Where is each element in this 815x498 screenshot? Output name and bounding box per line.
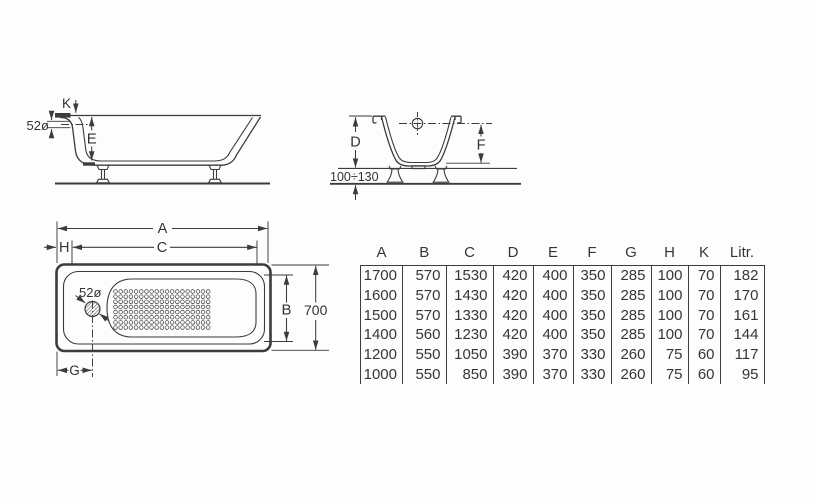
dim-label-b: B bbox=[281, 302, 291, 319]
dim-label-leg-range: 100÷130 bbox=[330, 170, 379, 184]
table-cell: 182 bbox=[720, 266, 764, 286]
table-cell: 350 bbox=[573, 286, 611, 306]
table-row: 1400560123042040035028510070144 bbox=[361, 325, 765, 345]
table-cell: 1400 bbox=[361, 325, 403, 345]
dim-f: F bbox=[446, 125, 490, 163]
table-header-cell: F bbox=[573, 236, 611, 266]
table-cell: 100 bbox=[651, 305, 688, 325]
table-header-cell: Litr. bbox=[720, 236, 764, 266]
dim-label-g: G bbox=[69, 363, 80, 378]
table-row: 1500570133042040035028510070161 bbox=[361, 305, 765, 325]
table-cell: 400 bbox=[533, 286, 573, 306]
table-cell: 1230 bbox=[446, 325, 493, 345]
dim-g: G bbox=[57, 352, 92, 379]
table-header-cell: C bbox=[446, 236, 493, 266]
dim-label-h: H bbox=[59, 240, 69, 256]
table-cell: 100 bbox=[651, 325, 688, 345]
top-view: 52ø A H C B bbox=[44, 221, 329, 378]
dim-e: E bbox=[87, 117, 97, 161]
table-cell: 285 bbox=[611, 266, 651, 286]
table-cell: 60 bbox=[688, 364, 720, 384]
table-cell: 285 bbox=[611, 305, 651, 325]
table-cell: 370 bbox=[533, 345, 573, 365]
table-header-cell: B bbox=[403, 236, 447, 266]
table-cell: 1530 bbox=[446, 266, 493, 286]
table-header-cell: E bbox=[533, 236, 573, 266]
table-header-cell: A bbox=[361, 236, 403, 266]
table-cell: 1050 bbox=[446, 345, 493, 365]
table-cell: 370 bbox=[533, 364, 573, 384]
table-cell: 390 bbox=[493, 364, 533, 384]
table-cell: 70 bbox=[688, 286, 720, 306]
dim-label-k: K bbox=[62, 96, 71, 111]
table-cell: 1000 bbox=[361, 364, 403, 384]
table-cell: 75 bbox=[651, 345, 688, 365]
dim-label-e: E bbox=[87, 131, 97, 148]
table-cell: 285 bbox=[611, 325, 651, 345]
table-cell: 70 bbox=[688, 325, 720, 345]
table-cell: 1600 bbox=[361, 286, 403, 306]
table-cell: 330 bbox=[573, 364, 611, 384]
table-cell: 260 bbox=[611, 345, 651, 365]
table-cell: 1700 bbox=[361, 266, 403, 286]
table-cell: 550 bbox=[403, 364, 447, 384]
side-view: K E 52ø bbox=[27, 96, 271, 184]
table-cell: 170 bbox=[720, 286, 764, 306]
dim-k: K bbox=[62, 96, 76, 113]
table-header-cell: D bbox=[493, 236, 533, 266]
table-header-row: ABCDEFGHKLitr. bbox=[361, 236, 765, 266]
table-cell: 570 bbox=[403, 286, 447, 306]
table-cell: 144 bbox=[720, 325, 764, 345]
antislip-mat bbox=[114, 290, 210, 330]
table-cell: 117 bbox=[720, 345, 764, 365]
dim-label-d: D bbox=[350, 135, 360, 151]
table-cell: 100 bbox=[651, 266, 688, 286]
section-view: D 100÷130 F bbox=[330, 112, 521, 200]
table-cell: 1330 bbox=[446, 305, 493, 325]
table-cell: 95 bbox=[720, 364, 764, 384]
dim-label-700: 700 bbox=[304, 302, 328, 318]
dim-label-c: C bbox=[157, 240, 167, 256]
table-cell: 260 bbox=[611, 364, 651, 384]
table-cell: 850 bbox=[446, 364, 493, 384]
dim-d: D bbox=[349, 116, 372, 168]
table-cell: 420 bbox=[493, 286, 533, 306]
table-cell: 390 bbox=[493, 345, 533, 365]
table-header-cell: K bbox=[688, 236, 720, 266]
table-cell: 70 bbox=[688, 305, 720, 325]
table-cell: 550 bbox=[403, 345, 447, 365]
table-cell: 570 bbox=[403, 305, 447, 325]
table-cell: 350 bbox=[573, 305, 611, 325]
table-row: 120055010503903703302607560117 bbox=[361, 345, 765, 365]
table-cell: 1200 bbox=[361, 345, 403, 365]
table-row: 1000550850390370330260756095 bbox=[361, 364, 765, 384]
table-cell: 75 bbox=[651, 364, 688, 384]
table-cell: 100 bbox=[651, 286, 688, 306]
drain-recess bbox=[412, 166, 425, 169]
dim-label-a: A bbox=[158, 221, 168, 237]
table-header-cell: G bbox=[611, 236, 651, 266]
table-row: 1700570153042040035028510070182 bbox=[361, 266, 765, 286]
table-header-cell: H bbox=[651, 236, 688, 266]
table-cell: 420 bbox=[493, 305, 533, 325]
table-cell: 350 bbox=[573, 325, 611, 345]
bathtub-dimension-drawing: K E 52ø bbox=[0, 0, 815, 498]
table-cell: 70 bbox=[688, 266, 720, 286]
waste-fitting bbox=[83, 162, 95, 165]
table-cell: 560 bbox=[403, 325, 447, 345]
table-cell: 420 bbox=[493, 325, 533, 345]
table-row: 1600570143042040035028510070170 bbox=[361, 286, 765, 306]
table-cell: 400 bbox=[533, 325, 573, 345]
side-legs bbox=[97, 165, 222, 183]
dim-overall-width: 700 bbox=[272, 265, 330, 350]
table-cell: 400 bbox=[533, 305, 573, 325]
table-cell: 285 bbox=[611, 286, 651, 306]
dimensions-table: ABCDEFGHKLitr. 1700570153042040035028510… bbox=[360, 236, 765, 384]
dim-label-overflow: 52ø bbox=[27, 118, 49, 133]
table-cell: 330 bbox=[573, 345, 611, 365]
table-cell: 420 bbox=[493, 266, 533, 286]
table-cell: 1430 bbox=[446, 286, 493, 306]
table-cell: 1500 bbox=[361, 305, 403, 325]
table-cell: 60 bbox=[688, 345, 720, 365]
dim-label-drain: 52ø bbox=[79, 285, 101, 300]
table-cell: 350 bbox=[573, 266, 611, 286]
dim-b: B bbox=[264, 275, 293, 342]
dim-h: H bbox=[44, 240, 72, 264]
table-cell: 570 bbox=[403, 266, 447, 286]
dim-c: C bbox=[73, 240, 257, 264]
table-cell: 400 bbox=[533, 266, 573, 286]
dim-leg-height-range: 100÷130 bbox=[330, 170, 379, 200]
table-cell: 161 bbox=[720, 305, 764, 325]
dim-label-f: F bbox=[477, 138, 486, 154]
